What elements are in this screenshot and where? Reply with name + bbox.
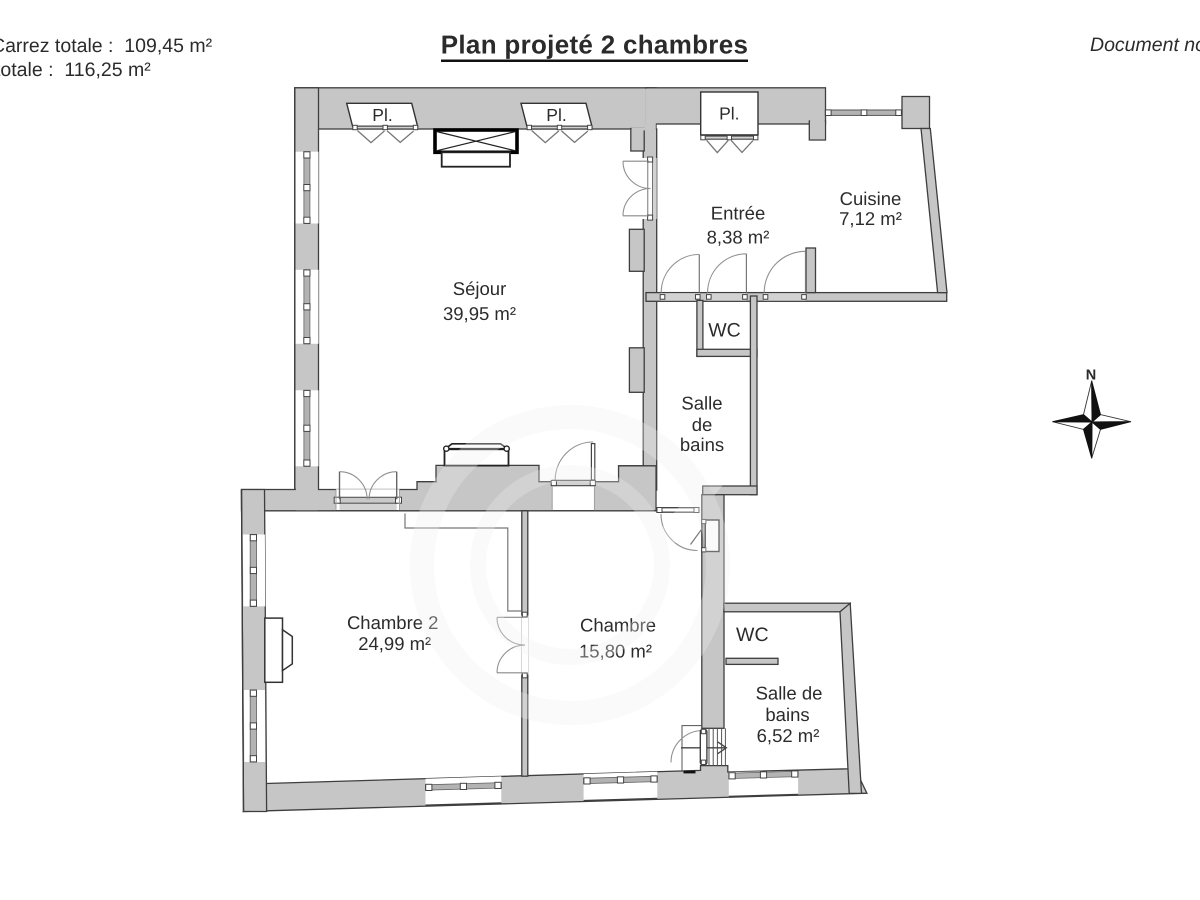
svg-text:Document non contractuel: Document non contractuel xyxy=(1090,34,1200,56)
svg-text:39,95 m²: 39,95 m² xyxy=(443,303,516,324)
svg-text:N: N xyxy=(1086,368,1096,384)
svg-text:Entrée: Entrée xyxy=(711,203,766,224)
svg-text:7,12 m²: 7,12 m² xyxy=(839,208,902,229)
svg-text:Pl.: Pl. xyxy=(719,104,739,124)
svg-text:Carrez totale : 109,45 m²: Carrez totale : 109,45 m² xyxy=(0,35,213,57)
svg-text:totale : 116,25 m²: totale : 116,25 m² xyxy=(0,59,151,81)
svg-text:bains: bains xyxy=(680,434,724,455)
svg-text:24,99 m²: 24,99 m² xyxy=(358,633,431,654)
svg-text:WC: WC xyxy=(708,320,741,342)
svg-text:de: de xyxy=(692,414,713,435)
svg-text:Pl.: Pl. xyxy=(372,105,392,125)
svg-text:8,38 m²: 8,38 m² xyxy=(707,227,770,248)
svg-text:Plan projeté 2 chambres: Plan projeté 2 chambres xyxy=(441,30,748,60)
svg-text:Séjour: Séjour xyxy=(453,278,506,299)
svg-text:Salle: Salle xyxy=(681,393,722,414)
svg-text:WC: WC xyxy=(736,624,769,646)
svg-text:6,52 m²: 6,52 m² xyxy=(757,725,820,746)
svg-text:bains: bains xyxy=(765,704,809,725)
svg-text:Cuisine: Cuisine xyxy=(840,188,902,209)
svg-text:Pl.: Pl. xyxy=(546,105,566,125)
svg-text:Salle de: Salle de xyxy=(756,683,823,704)
